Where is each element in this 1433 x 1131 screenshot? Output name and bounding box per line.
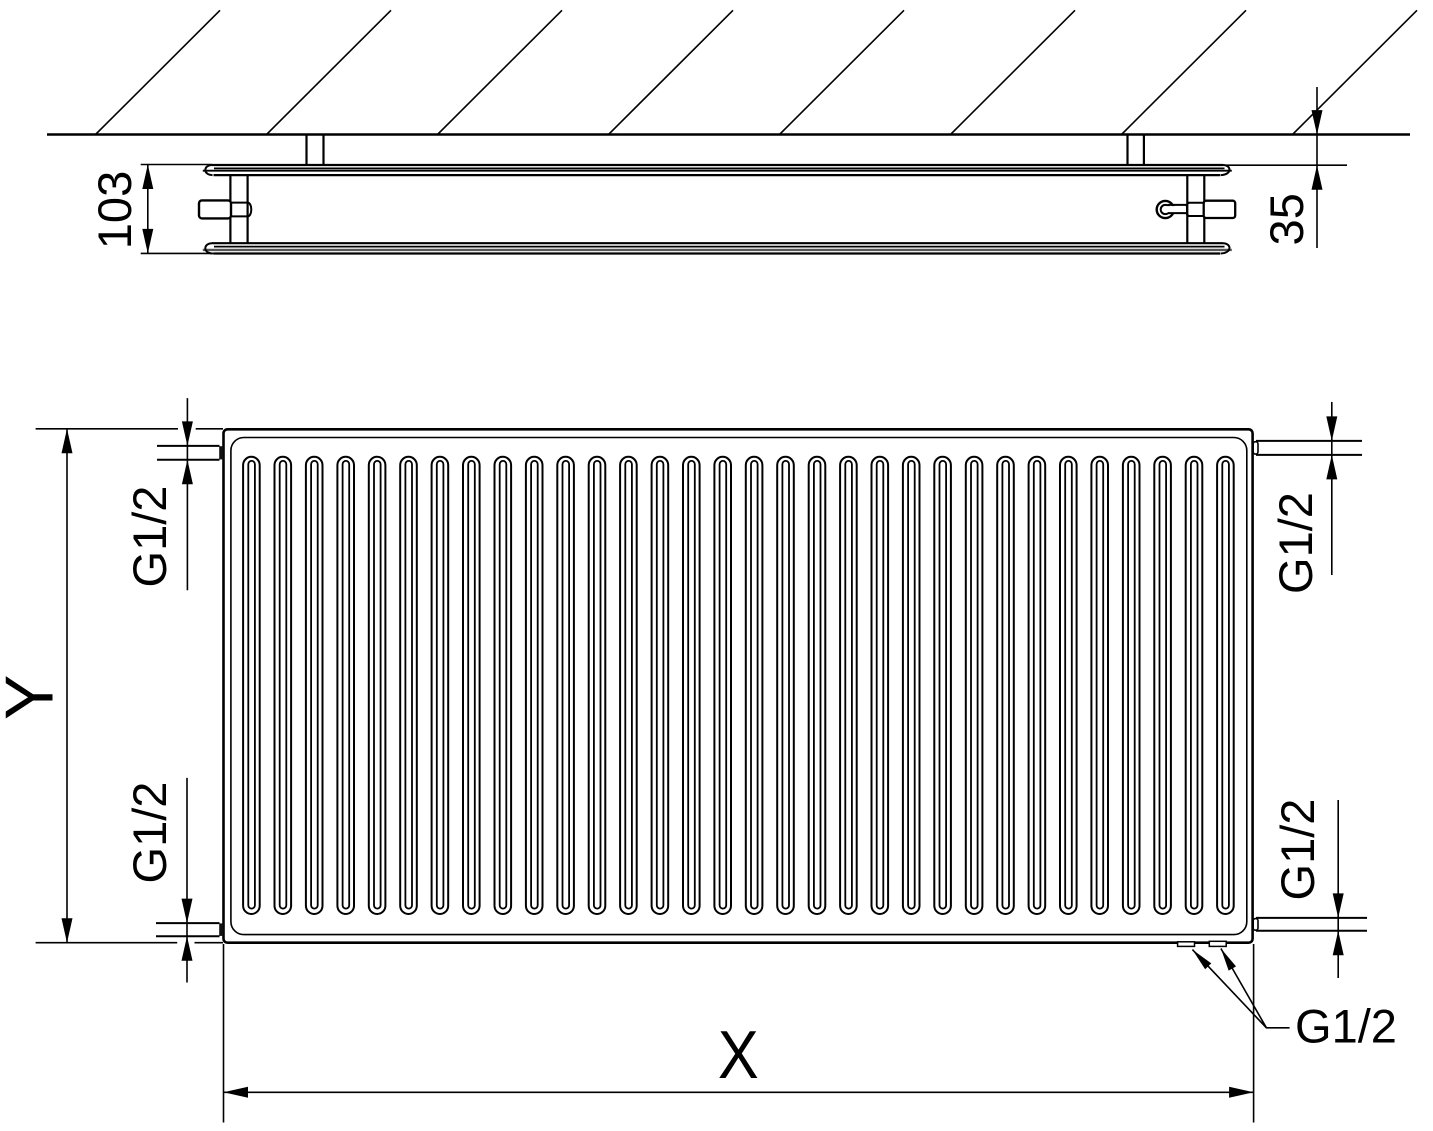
svg-text:G1/2: G1/2 xyxy=(1269,492,1322,594)
svg-text:G1/2: G1/2 xyxy=(1271,799,1324,901)
svg-text:G1/2: G1/2 xyxy=(123,486,176,588)
svg-text:G1/2: G1/2 xyxy=(123,782,176,884)
svg-text:103: 103 xyxy=(88,171,141,249)
svg-text:G1/2: G1/2 xyxy=(1295,999,1397,1052)
svg-text:X: X xyxy=(718,1016,759,1093)
svg-text:35: 35 xyxy=(1260,193,1313,245)
svg-text:Y: Y xyxy=(0,675,68,720)
